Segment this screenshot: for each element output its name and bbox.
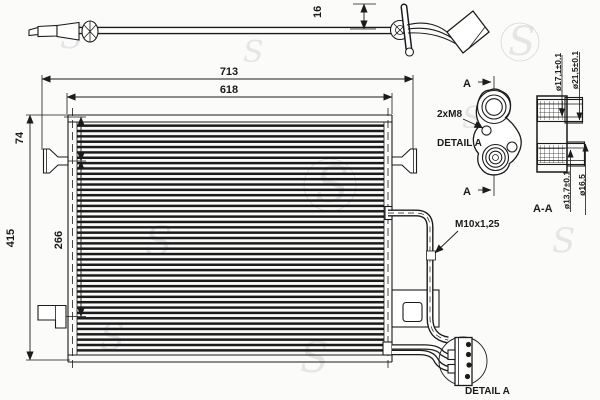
- section-arrow-bottom-label: A: [463, 186, 471, 198]
- dia-bottom-outer-label: ø16,5: [577, 174, 587, 196]
- section-a-a: ø17,1±0.1 ø21,5±0.1 ø13,7±0.1 ø16,5 A-A: [533, 51, 587, 215]
- dim-16-label: 16: [312, 6, 324, 18]
- drawing-canvas: S S S S S S S S S: [0, 0, 600, 400]
- pipe-left-tip: [29, 28, 38, 36]
- pipe-left-connector: [38, 26, 57, 37]
- dimension-pipe-offset: 16: [312, 4, 376, 29]
- dim-266-label: 266: [53, 231, 65, 249]
- section-bore-top: [538, 98, 583, 124]
- condenser-body: [38, 108, 439, 368]
- dim-74-label: 74: [14, 131, 26, 144]
- detail-a-view: A A 2xM8 DETAIL A: [437, 76, 521, 198]
- bracket-rod: [404, 7, 414, 56]
- detail-balloon-caption: DETAIL A: [465, 386, 510, 397]
- mount-bracket-top-right: [392, 149, 417, 173]
- watermark-letter: S: [508, 19, 535, 65]
- mount-bracket-bottom-left: [38, 306, 66, 329]
- m10-fitting: [427, 251, 436, 260]
- watermark-letter: S: [552, 221, 575, 261]
- bolt-thread-label: 2xM8: [437, 109, 462, 120]
- detail-view-label: DETAIL A: [437, 138, 482, 149]
- watermark-letter: S: [243, 35, 264, 70]
- dia-bottom-inner-label: ø13,7±0.1: [562, 171, 572, 209]
- dim-415-label: 415: [5, 229, 17, 247]
- dimension-core-width: 618: [67, 84, 392, 114]
- section-caption: A-A: [533, 203, 553, 215]
- flange-outline: [473, 89, 521, 175]
- pipe-left-cone: [57, 23, 79, 41]
- mount-bracket-top-left: [44, 149, 69, 173]
- pipe-left-nut: [82, 21, 98, 42]
- hose-end-connector: [447, 11, 489, 53]
- dimension-mounts: 74 266: [14, 117, 86, 317]
- detail-balloon: DETAIL A: [439, 337, 510, 397]
- section-arrow-top-label: A: [463, 78, 471, 90]
- dim-618-label: 618: [220, 84, 238, 96]
- condenser-core-fins: [77, 123, 384, 354]
- top-plate: [68, 115, 392, 122]
- fitting-thread-callout: M10x1,25: [435, 219, 500, 253]
- m10-label: M10x1,25: [455, 219, 500, 230]
- technical-drawing: S S S S S S S S S: [0, 0, 600, 400]
- section-bore-bottom: [538, 142, 585, 166]
- dia-top-outer-label: ø21,5±0.1: [570, 51, 580, 89]
- dim-713-label: 713: [220, 66, 238, 78]
- dia-top-inner-label: ø17,1±0.1: [553, 53, 563, 91]
- connection-pipes: [383, 207, 450, 370]
- pipe-flange-lower: [383, 342, 392, 355]
